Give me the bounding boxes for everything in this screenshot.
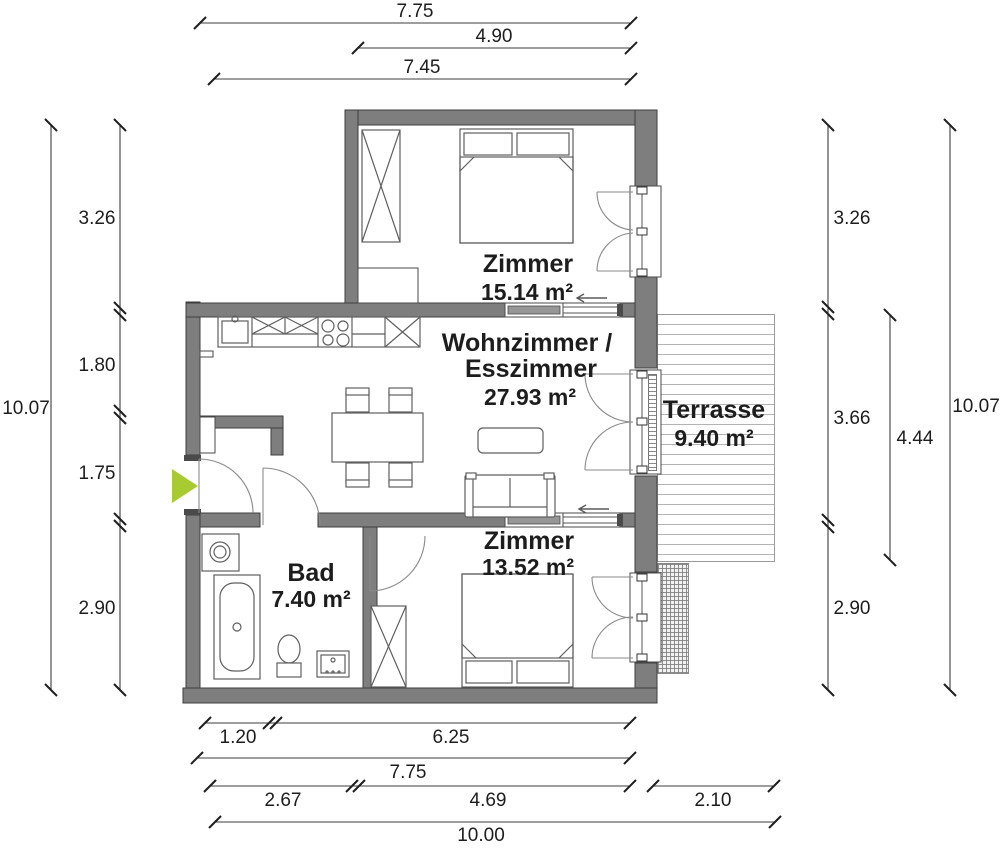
dim-right-2: 3.66 [834, 408, 871, 430]
french-door-zimmer2 [592, 573, 661, 662]
room-label-terrasse-name: Terrasse [663, 397, 765, 424]
slide-panel [508, 306, 560, 314]
door-threshold [648, 374, 657, 471]
room-label-wohnzimmer-area: 27.93 m² [484, 384, 576, 410]
coffee-table [478, 428, 543, 453]
toilet [277, 635, 301, 677]
kitchen-sink [222, 321, 248, 343]
track-cap [617, 514, 623, 526]
pillow [466, 661, 512, 683]
wall-right-2 [635, 277, 657, 368]
duct-niche [200, 417, 215, 453]
dining-set [332, 388, 423, 487]
dim-bottom-1a: 1.20 [220, 727, 257, 749]
dim-right-1: 3.26 [834, 208, 871, 230]
wall-left-lower [186, 515, 200, 688]
dim-bottom-3b: 4.69 [470, 790, 507, 812]
shaft-box [358, 268, 418, 303]
dim-left-2: 1.80 [79, 355, 116, 377]
chair [389, 463, 412, 487]
room-label-zimmer1-area: 15.14 m² [481, 279, 573, 305]
room-label-terrasse-area: 9.40 m² [674, 425, 753, 451]
room-label-zimmer1-name: Zimmer [483, 251, 573, 278]
slide-arrow-icon [579, 505, 609, 513]
floor-plan: Zimmer 15.14 m² Wohnzimmer / Esszimmer 2… [0, 0, 1000, 849]
dim-left-3: 1.75 [79, 463, 116, 485]
entry-arrow-icon [172, 469, 198, 503]
wall-bottom [183, 688, 657, 703]
room-label-bad-name: Bad [287, 560, 334, 587]
slide-arrow-icon [577, 294, 607, 302]
chair [346, 388, 369, 412]
zimmer2-door [370, 536, 425, 591]
dim-right-total: 10.07 [952, 396, 1000, 418]
wall-right-1 [635, 110, 657, 186]
room-label-bad-area: 7.40 m² [271, 586, 350, 612]
dim-bottom-3c: 2.10 [695, 790, 732, 812]
wall-slot [200, 351, 213, 357]
room-label-wohnzimmer-line2: Esszimmer [465, 356, 597, 383]
chair [346, 463, 369, 487]
kitchen-counter [218, 316, 420, 347]
zimmer1-furniture [362, 129, 573, 243]
washing-machine [202, 534, 239, 571]
room-label-zimmer2-name: Zimmer [484, 528, 574, 555]
dim-bottom-2: 7.75 [390, 762, 427, 784]
wall-hall-stub-v [271, 428, 283, 455]
french-door-bedroom [597, 186, 661, 277]
wall-top [345, 110, 657, 125]
dim-bottom-4: 10.00 [457, 825, 505, 847]
wall-kitchen-top [186, 303, 505, 317]
dim-bottom-1b: 6.25 [433, 727, 470, 749]
dim-left-4: 2.90 [79, 598, 116, 620]
dim-top-2: 4.90 [476, 26, 513, 48]
entry-door [199, 459, 253, 513]
sofa [465, 473, 555, 517]
room-label-zimmer2-area: 13.52 m² [482, 554, 574, 580]
chair [389, 388, 412, 412]
opening [563, 513, 620, 527]
pillow [517, 661, 569, 683]
dim-left-total: 10.07 [2, 398, 50, 420]
wall-bedroom-left [345, 110, 358, 303]
pillow [517, 133, 569, 155]
wall-left-upper [186, 302, 200, 455]
bathtub [214, 575, 260, 679]
dim-top-3: 7.45 [404, 57, 441, 79]
dim-left-1: 3.26 [79, 208, 116, 230]
dining-table [332, 413, 423, 462]
opening [563, 303, 620, 317]
wall-hall-bottom [200, 513, 260, 527]
track-cap [617, 304, 623, 316]
washbasin [317, 651, 349, 677]
dim-bottom-3a: 2.67 [265, 790, 302, 812]
pillow [464, 133, 512, 155]
zimmer2-furniture [371, 574, 573, 687]
dim-right-terrace: 4.44 [897, 428, 934, 450]
dim-top-1: 7.75 [397, 1, 434, 23]
dim-right-3: 2.90 [834, 598, 871, 620]
bad-door [263, 468, 320, 525]
room-label-wohnzimmer-line1: Wohnzimmer / [442, 330, 612, 357]
wall-right-3 [635, 476, 657, 572]
